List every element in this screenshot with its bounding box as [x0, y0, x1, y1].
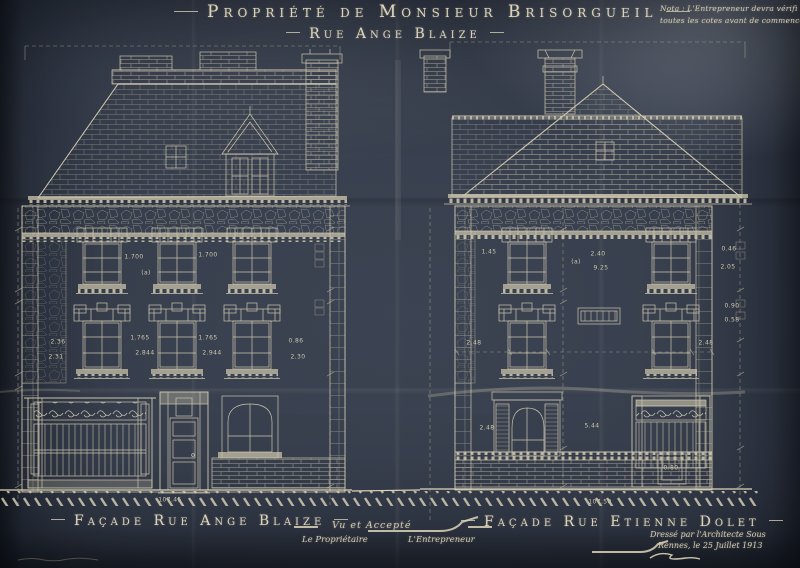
dimension-labels-layer: 1.7001.700(a)2.362.311.7652.8441.7652.94…	[0, 0, 800, 568]
dimension-label: 107.50	[588, 499, 611, 506]
dimension-label: 2.944	[202, 350, 221, 357]
dimension-label: 0.90	[725, 303, 740, 310]
dimension-label: 2.844	[135, 350, 154, 357]
dimension-label: 107.45	[158, 497, 181, 504]
dimension-label: (a)	[141, 270, 151, 277]
dimension-label: 1.765	[198, 335, 217, 342]
dimension-label: 1.765	[130, 335, 149, 342]
dimension-label: 2.48	[699, 340, 714, 347]
dimension-label: 2.48	[467, 340, 482, 347]
dimension-label: 2.36	[51, 339, 66, 346]
dimension-label: 1.700	[124, 254, 143, 261]
dimension-label: (a)	[571, 259, 581, 266]
dimension-label: 5.44	[585, 423, 600, 430]
dimension-label: 2.40	[591, 251, 606, 258]
dimension-label: 1.700	[198, 252, 217, 259]
dimension-label: 0.80	[664, 465, 679, 472]
dimension-label: 1.45	[482, 249, 497, 256]
dimension-label: 2.31	[49, 354, 64, 361]
dimension-label: 0.46	[722, 246, 737, 253]
dimension-label: 0.58	[725, 317, 740, 324]
blueprint-sheet: Propriété de Monsieur Brisorgueil Rue An…	[0, 0, 800, 568]
dimension-label: 2.05	[721, 264, 736, 271]
dimension-label: 9.25	[594, 265, 609, 272]
dimension-label: 2.30	[291, 354, 306, 361]
dimension-label: 2.48	[480, 425, 495, 432]
dimension-label: 0.86	[289, 338, 304, 345]
